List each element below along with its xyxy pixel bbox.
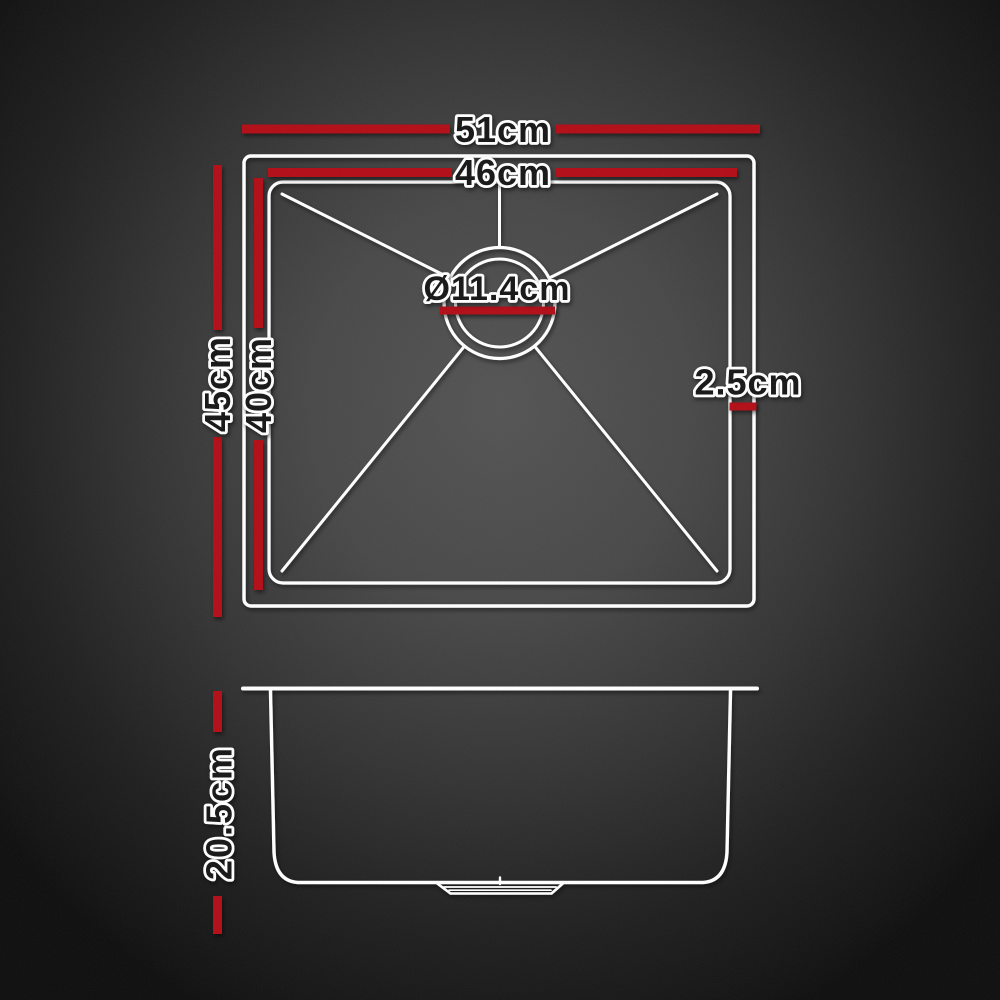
diagram-canvas: 51cm 46cm Ø11.4cm 45cm 40cm 2.5cm 20.5cm: [0, 0, 1000, 1000]
sink-dimension-diagram: 51cm 46cm Ø11.4cm 45cm 40cm 2.5cm 20.5cm: [0, 0, 1000, 1000]
film-grain-overlay: [0, 0, 1000, 1000]
